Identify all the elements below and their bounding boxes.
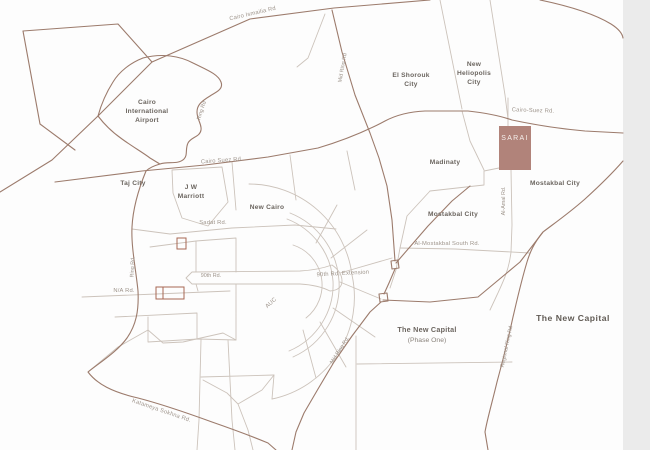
label-cairo-airport: Cairo — [138, 99, 156, 106]
label-taj-city: Taj City — [120, 180, 145, 187]
label-jw-marriott: J W — [185, 184, 198, 191]
sarai-label: SARAI — [501, 135, 529, 142]
sarai-marker[interactable]: SARAI — [499, 126, 531, 170]
label-madinaty: Madinaty — [430, 159, 461, 166]
label-auc: AUC — [265, 297, 279, 310]
label-cairo-airport: Airport — [135, 117, 159, 124]
label-cairo-ismailia-rd: Cairo Ismailia Rd — [229, 6, 277, 23]
label-mostakbal-west: Mostakbal City — [428, 211, 478, 218]
map-stage: SARAI Cairo International Airport El Sho… — [0, 0, 650, 450]
label-90th-rd: 90th Rd. — [201, 273, 221, 279]
label-el-shorouk: City — [404, 81, 418, 88]
label-ring-rd-airport: Ring Rd — [196, 100, 208, 120]
road-labels: Cairo Ismailia Rd Mid Ring Rd Ring Rd Ca… — [113, 6, 554, 424]
map-svg: SARAI Cairo International Airport El Sho… — [0, 0, 650, 450]
label-new-heliopolis: City — [467, 79, 481, 86]
label-al-mostakbal-south-rd: Al-Mostakbal South Rd. — [414, 241, 479, 247]
label-cairo-suez-rd-east: Cairo-Suez Rd. — [512, 107, 555, 114]
sarai-box[interactable] — [499, 126, 531, 170]
label-new-capital-phase-one: (Phase One) — [408, 337, 447, 344]
label-mostakbal-east: Mostakbal City — [530, 180, 580, 187]
label-mid-ring-rd-south: Mid Ring Rd. — [329, 336, 351, 365]
label-new-cairo: New Cairo — [250, 204, 285, 211]
label-new-capital: The New Capital — [536, 313, 610, 323]
label-new-heliopolis: Heliopolis — [457, 70, 491, 77]
major-roads — [0, 0, 623, 450]
label-cairo-airport: International — [126, 108, 169, 115]
label-ring-rd-south: Ring Rd. — [129, 256, 136, 277]
label-new-capital-phase-one: The New Capital — [397, 325, 456, 334]
label-new-heliopolis: New — [467, 61, 482, 68]
label-sadat-rd: Sadat Rd. — [199, 220, 227, 226]
highlight-plots — [156, 238, 186, 299]
label-cairo-suez-rd-west: Cairo Suez Rd. — [201, 157, 244, 166]
label-90th-rd-extension: 90th Rd. Extension — [317, 270, 370, 279]
label-na-rd: N/A Rd. — [113, 288, 135, 294]
label-jw-marriott: Marriott — [178, 193, 205, 200]
right-gutter — [623, 0, 650, 450]
label-el-shorouk: El Shorouk — [392, 72, 429, 79]
region-labels: Cairo International Airport El Shorouk C… — [120, 61, 610, 344]
minor-roads — [82, 0, 530, 450]
label-al-amal-rd: Al-Amal Rd. — [501, 187, 507, 216]
